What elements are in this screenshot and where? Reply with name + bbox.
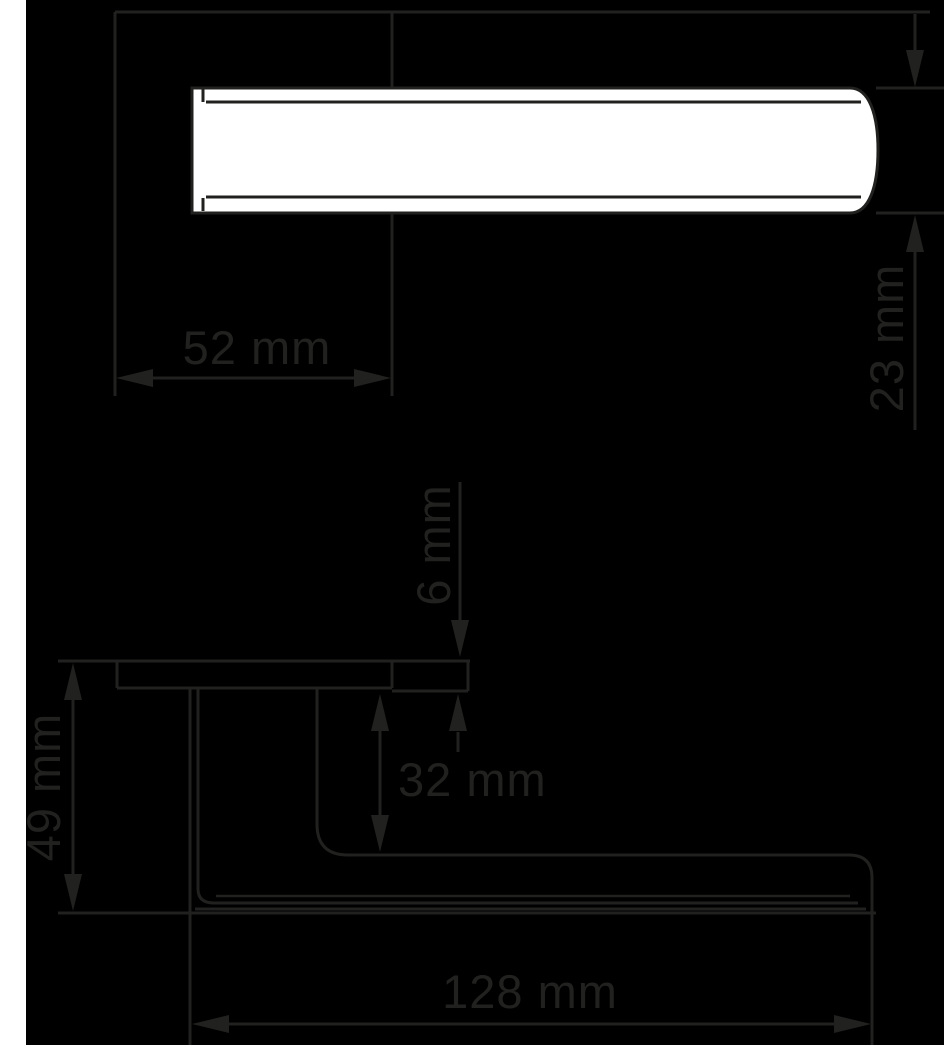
dim-label-128mm: 128 mm (442, 965, 618, 1018)
handle-dimension-drawing: 52 mm 23 mm 6 mm 49 mm 32 mm (0, 0, 944, 1045)
drawing-canvas: 52 mm 23 mm 6 mm 49 mm 32 mm (0, 0, 944, 1045)
left-margin-strip (0, 0, 26, 1045)
dim-label-32mm: 32 mm (398, 753, 547, 806)
dim-label-52mm: 52 mm (183, 321, 332, 374)
handle-bar-top-view (192, 88, 878, 213)
dim-label-49mm: 49 mm (17, 713, 70, 862)
dim-label-6mm: 6 mm (407, 484, 460, 606)
dim-label-23mm: 23 mm (860, 264, 913, 413)
